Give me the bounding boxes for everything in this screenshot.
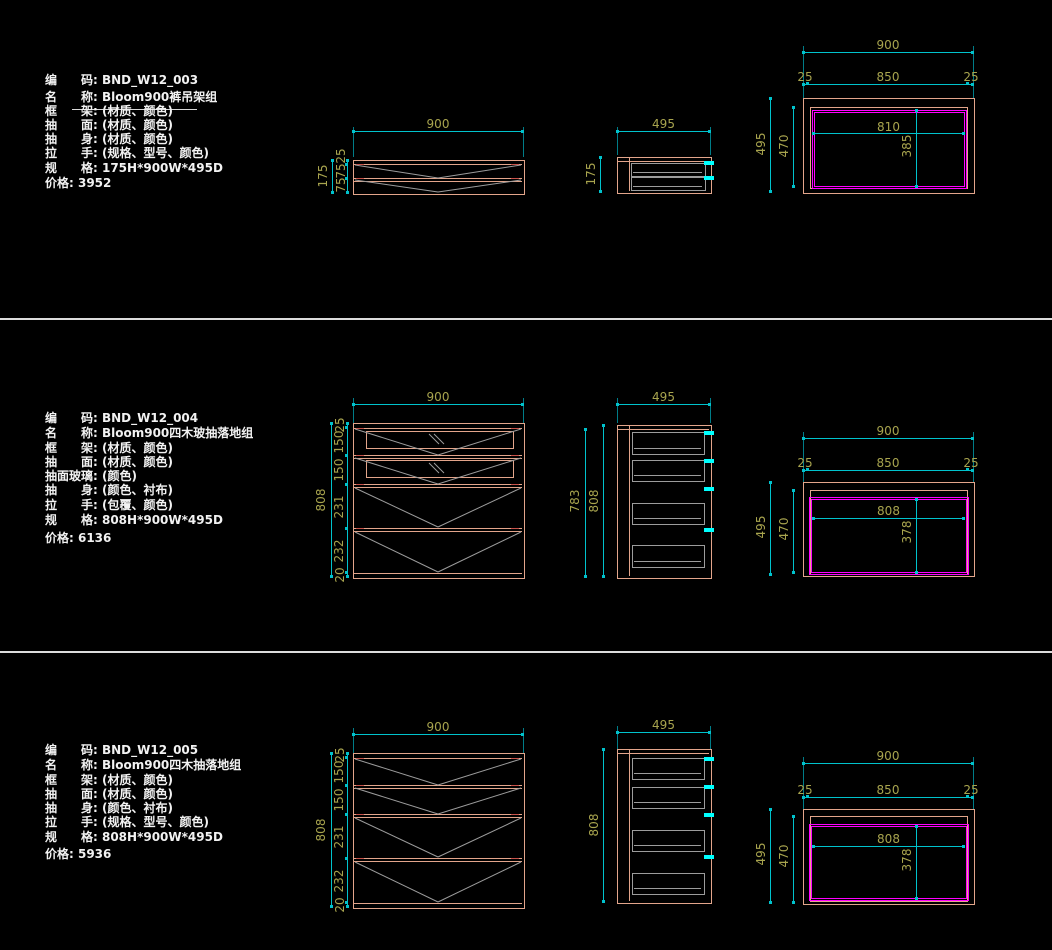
- cabinet-outline-front: [353, 423, 525, 579]
- drawer-box: [632, 830, 705, 852]
- dim-label-depth-inner: 470: [778, 135, 790, 158]
- panel-line: [618, 753, 709, 754]
- panel-line: [354, 181, 522, 182]
- drawer-box-line: [634, 448, 701, 449]
- joint-mark: [511, 455, 519, 456]
- dim-tick: [345, 527, 348, 530]
- joint-mark: [356, 528, 364, 529]
- panel-line: [629, 158, 630, 191]
- dim-label-seg: 20: [334, 897, 346, 912]
- drawer-box: [632, 787, 705, 809]
- drawer-vline-graphic: [353, 160, 523, 193]
- drawer-handle: [704, 161, 714, 165]
- joint-mark: [511, 785, 519, 786]
- dim-line: [793, 490, 794, 573]
- dim-line: [916, 110, 917, 187]
- spec-line-price: 价格: 3952: [45, 177, 111, 190]
- cabinet-outline-side: [617, 425, 712, 579]
- spec-line-body: 抽 身: (颜色、衬布): [45, 484, 173, 497]
- panel-line: [354, 428, 522, 429]
- panel-line: [354, 758, 522, 759]
- extension-line: [353, 127, 354, 157]
- drawer-opening-outline: [809, 497, 969, 575]
- dim-label-height: 175: [317, 165, 329, 188]
- spec-line-name: 名 称: Bloom900四木玻抽落地组: [45, 427, 253, 440]
- dim-tick: [345, 784, 348, 787]
- spec-line-face: 抽 面: (材质、颜色): [45, 456, 173, 469]
- dim-label-open-depth: 385: [901, 135, 913, 158]
- dim-line: [617, 131, 710, 132]
- joint-mark: [356, 164, 364, 165]
- catalog-row-1: 编 码: BND_W12_003 名 称: Bloom900裤吊架组 框 架: …: [0, 0, 1052, 950]
- spec-line-name: 名 称: Bloom900四木抽落地组: [45, 759, 241, 772]
- dim-label-open-depth: 378: [901, 521, 913, 544]
- drawer-handle: [704, 459, 714, 463]
- drawer-opening-outline: [809, 824, 969, 901]
- dim-line: [770, 482, 771, 575]
- dim-line: [813, 518, 964, 519]
- drawer-box-line: [634, 773, 701, 774]
- extension-line: [973, 46, 974, 98]
- glass-panel: [366, 431, 514, 449]
- cabinet-outline-side: [617, 749, 712, 904]
- dim-line: [813, 133, 964, 134]
- spec-line-handle: 拉 手: (规格、型号、颜色): [45, 147, 209, 160]
- dim-tick: [806, 82, 809, 85]
- dim-tick: [345, 571, 348, 574]
- drawer-box-line: [634, 845, 701, 846]
- dim-line: [617, 404, 710, 405]
- drawer-vline-graphic: [353, 423, 523, 577]
- dim-label-seg: 25: [334, 747, 346, 762]
- dim-label-seg: 231: [333, 496, 345, 519]
- dim-label-depth: 495: [755, 516, 767, 539]
- drawer-box-line: [633, 172, 702, 173]
- dim-label-seg: 232: [333, 870, 345, 893]
- dim-label-width: 900: [803, 425, 973, 437]
- spec-line-body: 抽 身: (材质、颜色): [45, 133, 173, 146]
- panel-line: [354, 531, 522, 532]
- joint-mark: [356, 785, 364, 786]
- joint-mark: [511, 814, 519, 815]
- dim-label-edge: 25: [793, 71, 817, 83]
- dim-line: [617, 732, 710, 733]
- dim-line: [770, 98, 771, 192]
- cabinet-outline-plan: [803, 98, 975, 194]
- drawer-box-line: [633, 186, 702, 187]
- drawer-handle: [704, 528, 714, 532]
- extension-line: [353, 728, 354, 754]
- drawer-opening-outline: [811, 826, 967, 899]
- dim-label-height: 808: [588, 490, 600, 513]
- spec-line-code: 编 码: BND_W12_005: [45, 744, 198, 757]
- spec-line-frame: 框 架: (材质、颜色): [45, 442, 173, 455]
- dim-label-depth: 495: [617, 391, 710, 403]
- spec-line-price: 价格: 5936: [45, 848, 111, 861]
- dim-label-depth-inner: 470: [778, 518, 790, 541]
- dim-label-height2: 783: [569, 490, 581, 513]
- stray-line: [72, 109, 197, 110]
- glass-panel: [366, 460, 514, 478]
- drawer-box: [631, 177, 706, 191]
- spec-line-code: 编 码: BND_W12_004: [45, 412, 198, 425]
- spec-line-size: 规 格: 175H*900W*495D: [45, 162, 223, 175]
- dim-label-seg: 150: [333, 789, 345, 812]
- dim-tick: [806, 468, 809, 471]
- dim-tick: [345, 426, 348, 429]
- dim-tick: [345, 454, 348, 457]
- drawer-handle: [704, 431, 714, 435]
- joint-mark: [511, 758, 519, 759]
- dim-line: [793, 816, 794, 903]
- spec-line-body: 抽 身: (颜色、衬布): [45, 802, 173, 815]
- dim-line: [331, 753, 332, 907]
- drawer-handle: [704, 813, 714, 817]
- cabinet-outline-front: [353, 753, 525, 909]
- dim-line: [813, 846, 964, 847]
- dim-label-seg: 150: [333, 459, 345, 482]
- spec-line-face: 抽 面: (材质、颜色): [45, 119, 173, 132]
- drawer-handle: [704, 757, 714, 761]
- cabinet-outline-side: [617, 157, 712, 194]
- dim-label-frame: 850: [803, 784, 973, 796]
- spec-line-size: 规 格: 808H*900W*495D: [45, 831, 223, 844]
- panel-line: [354, 458, 522, 459]
- drawer-handle: [704, 176, 714, 180]
- dim-line: [353, 734, 523, 735]
- drawer-box: [632, 432, 705, 455]
- joint-mark: [356, 178, 364, 179]
- drawer-box: [632, 503, 705, 525]
- drawer-box-line: [634, 561, 701, 562]
- dim-tick: [345, 483, 348, 486]
- dim-label-edge: 25: [959, 784, 983, 796]
- drawer-box: [632, 460, 705, 482]
- cabinet-outline-plan: [803, 482, 975, 577]
- extension-line: [617, 127, 618, 155]
- joint-mark: [511, 164, 519, 165]
- dim-label-seg: 25: [335, 148, 347, 163]
- panel-line: [354, 455, 522, 456]
- catalog-row-2: 编 码: BND_W12_004 名 称: Bloom900四木玻抽落地组 框 …: [0, 0, 1052, 950]
- drawer-vline-graphic: [353, 753, 523, 907]
- panel-line: [354, 528, 522, 529]
- drawer-box-line: [634, 802, 701, 803]
- panel-line: [354, 178, 522, 179]
- extension-line: [973, 757, 974, 809]
- dim-label-seg: 232: [333, 540, 345, 563]
- dim-label-open-depth: 378: [901, 849, 913, 872]
- panel-line: [354, 484, 522, 485]
- dim-tick: [966, 795, 969, 798]
- drawer-box-line: [634, 518, 701, 519]
- panel-line: [354, 814, 522, 815]
- drawer-box: [632, 758, 705, 780]
- dim-line: [332, 160, 333, 193]
- panel-line: [354, 788, 522, 789]
- joint-mark: [356, 455, 364, 456]
- spec-line-face: 抽 面: (材质、颜色): [45, 788, 173, 801]
- dim-label-height: 808: [315, 489, 327, 512]
- spec-line-size: 规 格: 808H*900W*495D: [45, 514, 223, 527]
- panel-line: [354, 858, 522, 859]
- dim-label-depth-inner: 470: [778, 845, 790, 868]
- dim-tick: [345, 756, 348, 759]
- extension-line: [523, 127, 524, 157]
- cabinet-inner-frame: [810, 107, 968, 189]
- row-divider: [0, 318, 1052, 320]
- dim-label-depth: 495: [617, 118, 710, 130]
- dim-tick: [345, 857, 348, 860]
- dim-label-seg: 20: [334, 567, 346, 582]
- dim-line: [347, 753, 348, 907]
- dim-label-width: 900: [803, 750, 973, 762]
- dim-label-width: 900: [353, 118, 523, 130]
- dim-label-height: 808: [588, 814, 600, 837]
- dim-line: [803, 797, 973, 798]
- extension-line: [710, 127, 711, 155]
- extension-line: [617, 398, 618, 423]
- extension-line: [710, 726, 711, 749]
- drawer-opening-outline: [812, 110, 967, 189]
- dim-label-frame: 850: [803, 457, 973, 469]
- drawer-opening-outline: [811, 499, 967, 573]
- dim-line: [803, 763, 973, 764]
- dim-line: [803, 52, 973, 53]
- dim-label-seg: 25: [334, 417, 346, 432]
- panel-line: [354, 861, 522, 862]
- dim-label-depth: 495: [755, 133, 767, 156]
- joint-mark: [511, 428, 519, 429]
- dim-label-edge: 25: [959, 457, 983, 469]
- dim-line: [916, 499, 917, 573]
- extension-line: [973, 432, 974, 482]
- dim-label-edge: 25: [959, 71, 983, 83]
- dim-line: [770, 809, 771, 903]
- panel-line: [354, 164, 522, 165]
- drawer-handle: [704, 785, 714, 789]
- drawer-box-line: [634, 475, 701, 476]
- dim-line: [347, 423, 348, 577]
- dim-line: [353, 131, 523, 132]
- dim-line: [916, 826, 917, 899]
- panel-line: [618, 161, 709, 162]
- dim-line: [603, 425, 604, 577]
- dim-tick: [345, 177, 348, 180]
- joint-mark: [356, 858, 364, 859]
- spec-line-handle: 拉 手: (包覆、颜色): [45, 499, 173, 512]
- extension-line: [523, 398, 524, 424]
- drawer-handle: [704, 855, 714, 859]
- dim-line: [331, 423, 332, 577]
- panel-line: [629, 750, 630, 901]
- panel-line: [354, 903, 522, 904]
- dim-label-width: 900: [353, 391, 523, 403]
- dim-line: [803, 438, 973, 439]
- spec-line-name: 名 称: Bloom900裤吊架组: [45, 91, 217, 104]
- joint-mark: [356, 484, 364, 485]
- cabinet-inner-frame: [810, 490, 968, 575]
- extension-line: [353, 398, 354, 424]
- panel-line: [618, 429, 709, 430]
- joint-mark: [511, 858, 519, 859]
- dim-tick: [345, 163, 348, 166]
- row-divider: [0, 651, 1052, 653]
- dim-label-open-width: 808: [813, 505, 964, 517]
- extension-line: [803, 757, 804, 809]
- dim-label-seg: 75: [335, 177, 347, 192]
- joint-mark: [356, 814, 364, 815]
- dim-line: [793, 107, 794, 187]
- cabinet-inner-frame: [810, 816, 968, 902]
- dim-line: [585, 429, 586, 577]
- cad-canvas: 编 码: BND_W12_003 名 称: Bloom900裤吊架组 框 架: …: [0, 0, 1052, 950]
- dim-label-edge: 25: [793, 784, 817, 796]
- catalog-row-3: 编 码: BND_W12_005 名 称: Bloom900四木抽落地组 框 架…: [0, 0, 1052, 950]
- dim-tick: [966, 82, 969, 85]
- spec-line-price: 价格: 6136: [45, 532, 111, 545]
- dim-label-seg: 150: [333, 431, 345, 454]
- spec-line-handle: 拉 手: (规格、型号、颜色): [45, 816, 209, 829]
- drawer-box: [631, 163, 706, 177]
- dim-label-width: 900: [803, 39, 973, 51]
- dim-line: [347, 160, 348, 193]
- panel-line: [629, 426, 630, 576]
- joint-mark: [356, 428, 364, 429]
- dim-label-height: 175: [585, 163, 597, 186]
- extension-line: [523, 728, 524, 754]
- joint-mark: [511, 484, 519, 485]
- cabinet-outline-front: [353, 160, 525, 195]
- spec-line-frame: 框 架: (材质、颜色): [45, 105, 173, 118]
- joint-mark: [511, 178, 519, 179]
- dim-label-width: 900: [353, 721, 523, 733]
- dim-tick: [345, 813, 348, 816]
- dim-line: [353, 404, 523, 405]
- spec-line-frame: 框 架: (材质、颜色): [45, 774, 173, 787]
- dim-label-edge: 25: [793, 457, 817, 469]
- extension-line: [803, 46, 804, 98]
- drawer-box-line: [634, 888, 701, 889]
- dim-label-height: 808: [315, 819, 327, 842]
- drawer-opening-outline: [814, 112, 965, 187]
- dim-line: [803, 470, 973, 471]
- dim-tick: [806, 795, 809, 798]
- spec-line-code: 编 码: BND_W12_003: [45, 74, 198, 87]
- dim-label-open-width: 808: [813, 833, 964, 845]
- dim-line: [600, 157, 601, 192]
- extension-line: [617, 726, 618, 749]
- spec-line-glass: 抽面玻璃: (颜色): [45, 470, 137, 483]
- dim-label-seg: 150: [333, 761, 345, 784]
- panel-line: [354, 785, 522, 786]
- drawer-handle: [704, 487, 714, 491]
- dim-line: [803, 84, 973, 85]
- joint-mark: [511, 528, 519, 529]
- dim-label-open-width: 810: [813, 121, 964, 133]
- joint-mark: [356, 758, 364, 759]
- dim-label-depth: 495: [617, 719, 710, 731]
- extension-line: [710, 398, 711, 423]
- panel-line: [354, 817, 522, 818]
- dim-label-frame: 850: [803, 71, 973, 83]
- drawer-box: [632, 873, 705, 895]
- panel-line: [354, 487, 522, 488]
- dim-tick: [966, 468, 969, 471]
- panel-line: [354, 573, 522, 574]
- dim-label-seg: 75: [335, 163, 347, 178]
- dim-label-depth: 495: [755, 843, 767, 866]
- extension-line: [803, 432, 804, 482]
- drawer-box: [632, 545, 705, 568]
- cabinet-outline-plan: [803, 809, 975, 905]
- dim-tick: [345, 901, 348, 904]
- dim-line: [603, 749, 604, 902]
- dim-label-seg: 231: [333, 826, 345, 849]
